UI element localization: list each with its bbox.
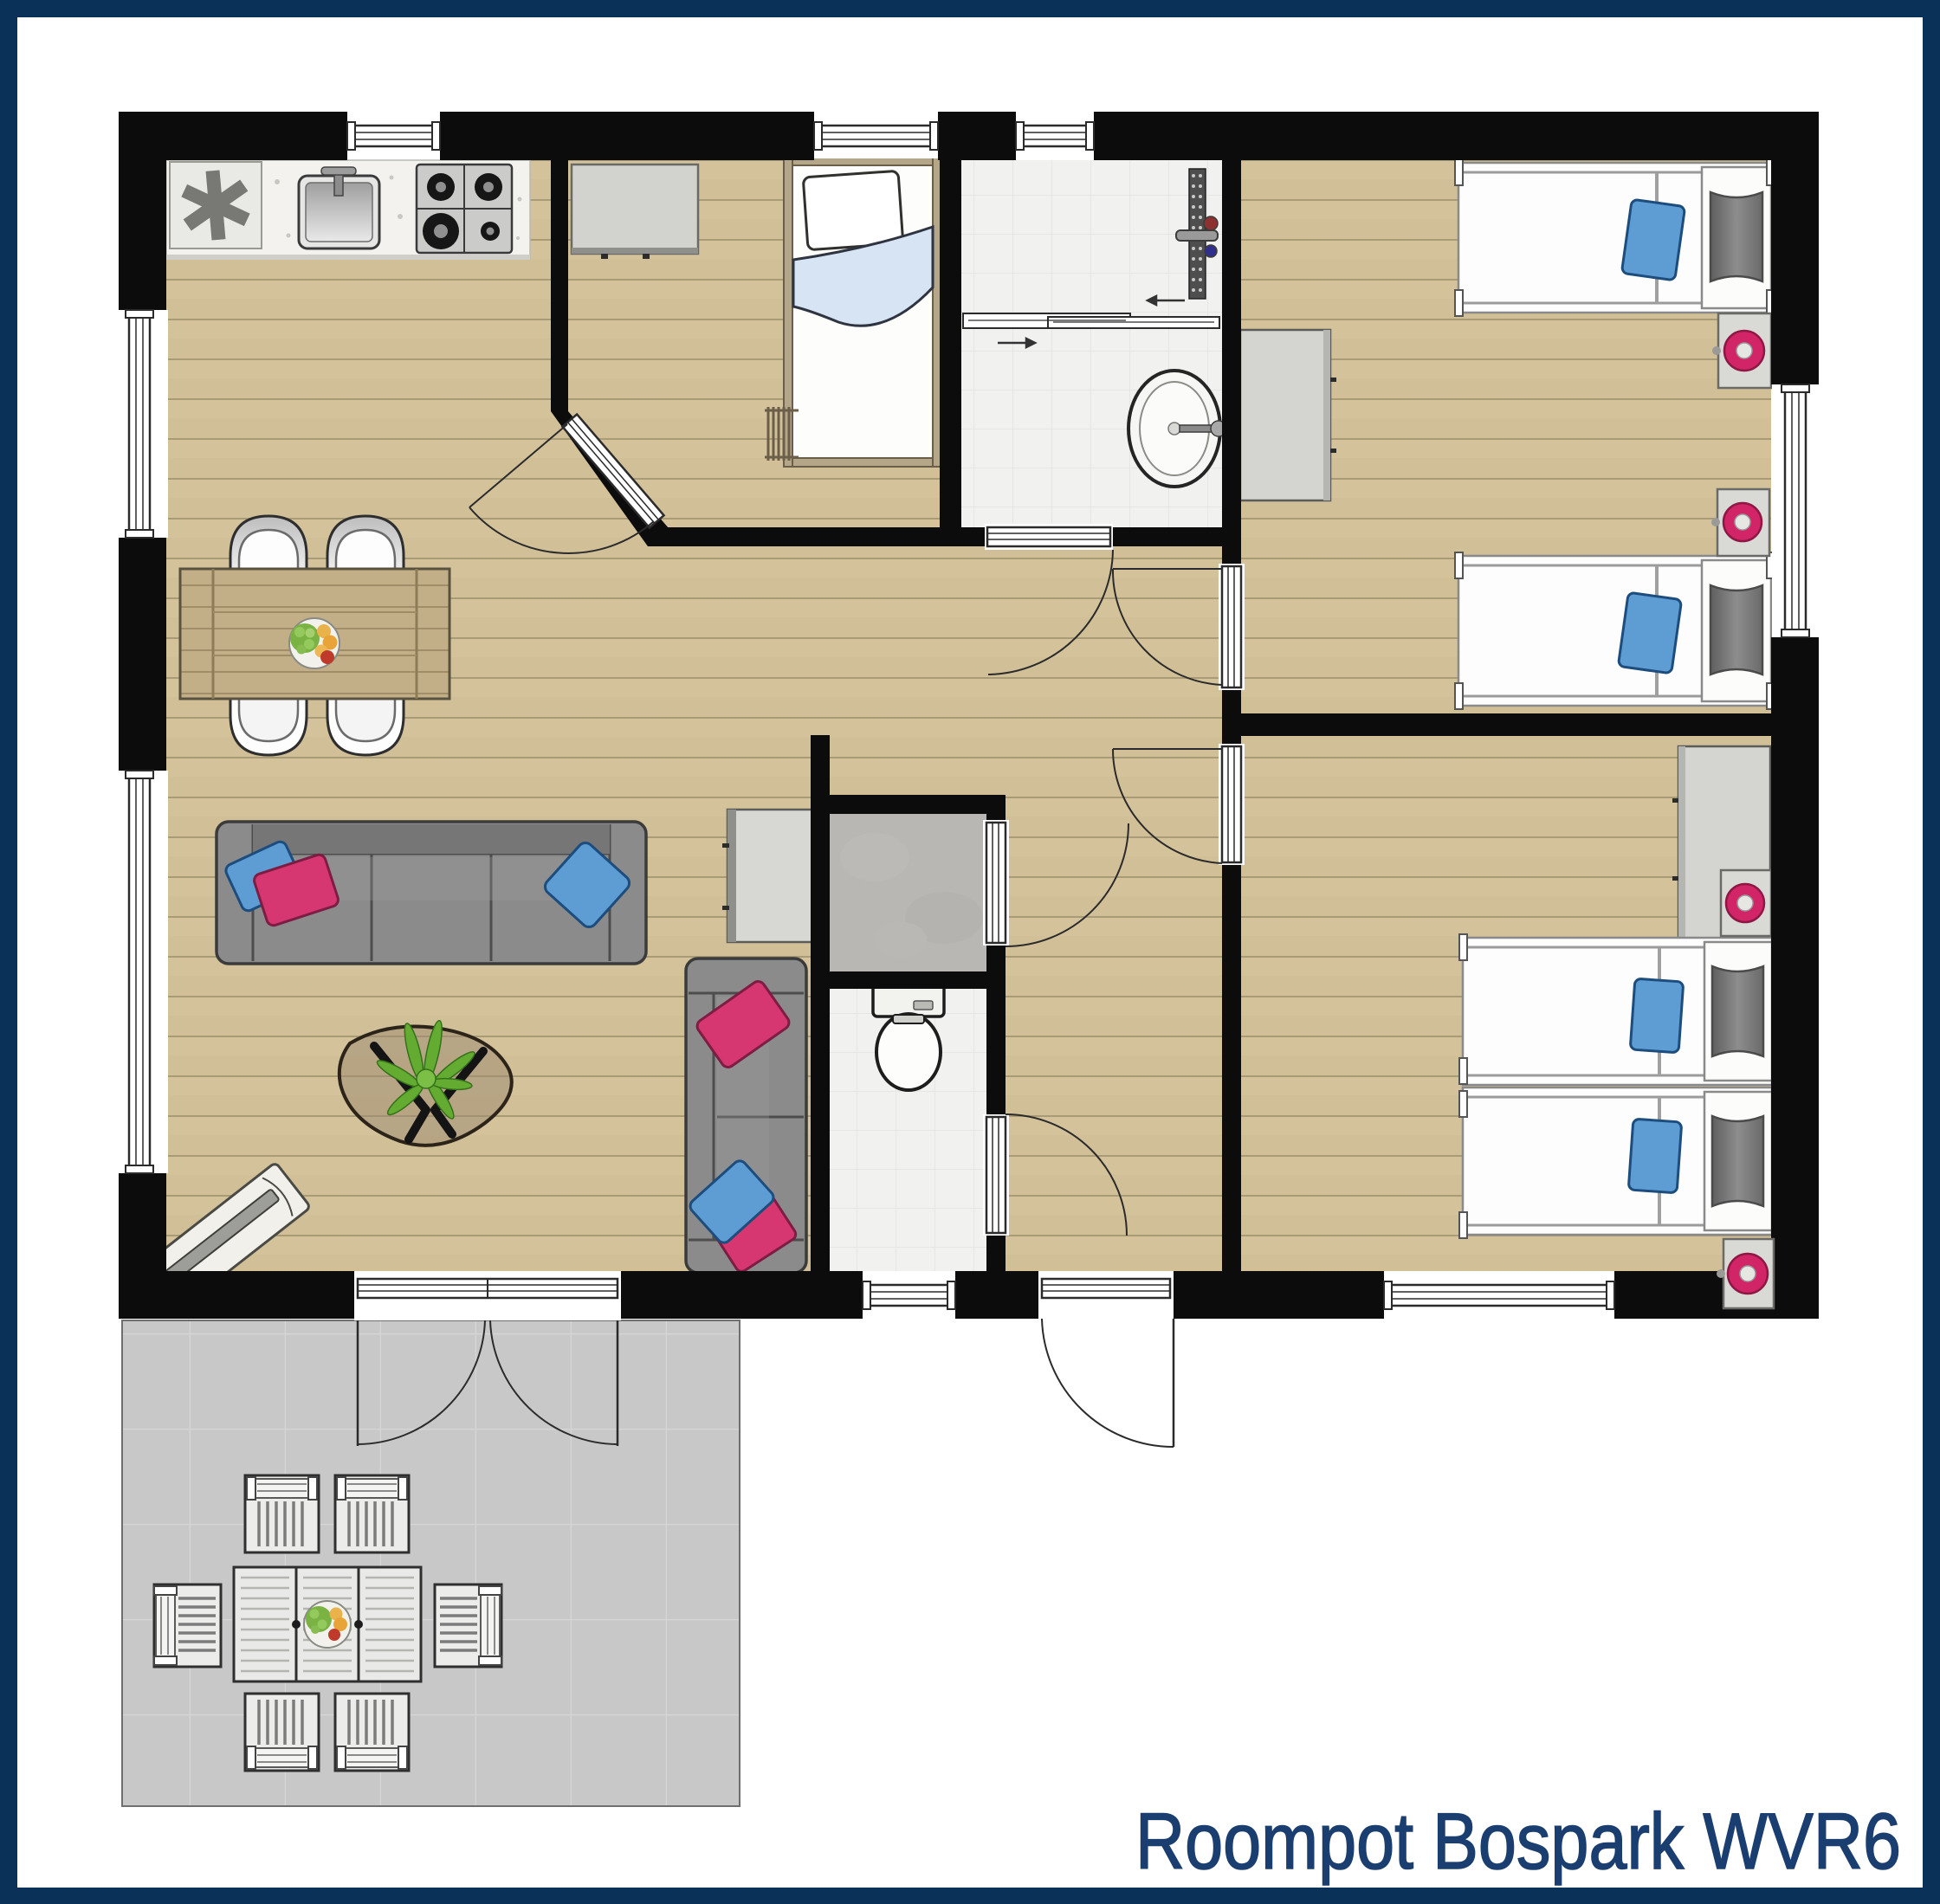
svg-text:Roompot Bospark WVR6: Roompot Bospark WVR6 [1135,1798,1901,1886]
